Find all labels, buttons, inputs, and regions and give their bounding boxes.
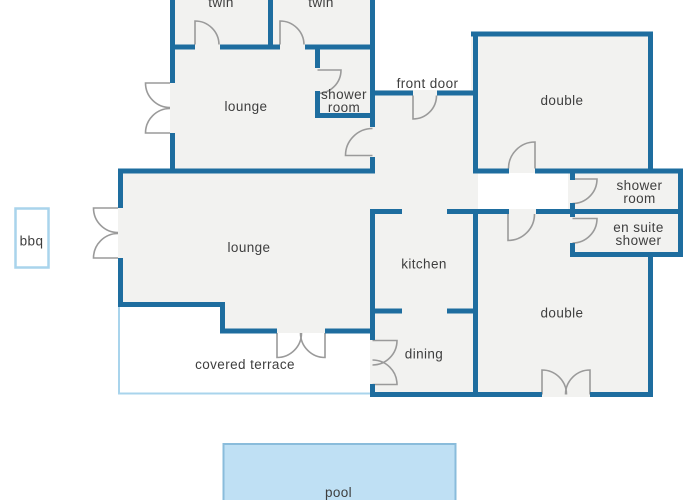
room-fills: [118, 0, 683, 397]
door-lounge-west-b: [94, 234, 119, 259]
door-lounge-west-a: [94, 208, 119, 233]
door-lounge-upper-west-a: [146, 83, 171, 108]
label-twin-1: twin: [208, 0, 234, 10]
label-front-door: front door: [397, 76, 459, 91]
label-shower-room-right-line2: room: [623, 191, 655, 206]
room-area-hall: [370, 90, 478, 213]
label-kitchen: kitchen: [401, 257, 447, 272]
floor-plan-canvas: twin twin lounge shower room front door …: [0, 0, 700, 500]
label-lounge-upper: lounge: [225, 99, 268, 114]
label-pool: pool: [325, 485, 352, 500]
floor-plan-page: twin twin lounge shower room front door …: [0, 0, 700, 500]
label-en-suite-line2: shower: [616, 233, 662, 248]
label-shower-room-top-line2: room: [328, 100, 360, 115]
label-lounge-main: lounge: [228, 240, 271, 255]
door-lounge-terrace-a: [277, 333, 302, 358]
label-twin-2: twin: [308, 0, 334, 10]
door-lounge-upper-west-b: [146, 109, 171, 134]
label-dining: dining: [405, 347, 443, 362]
label-bbq: bbq: [20, 234, 44, 249]
label-covered-terrace: covered terrace: [195, 357, 295, 372]
room-area-kitchen-dining: [370, 209, 478, 397]
label-double-bottom: double: [541, 306, 584, 321]
door-lounge-terrace-b: [301, 333, 326, 358]
label-double-top: double: [541, 93, 584, 108]
